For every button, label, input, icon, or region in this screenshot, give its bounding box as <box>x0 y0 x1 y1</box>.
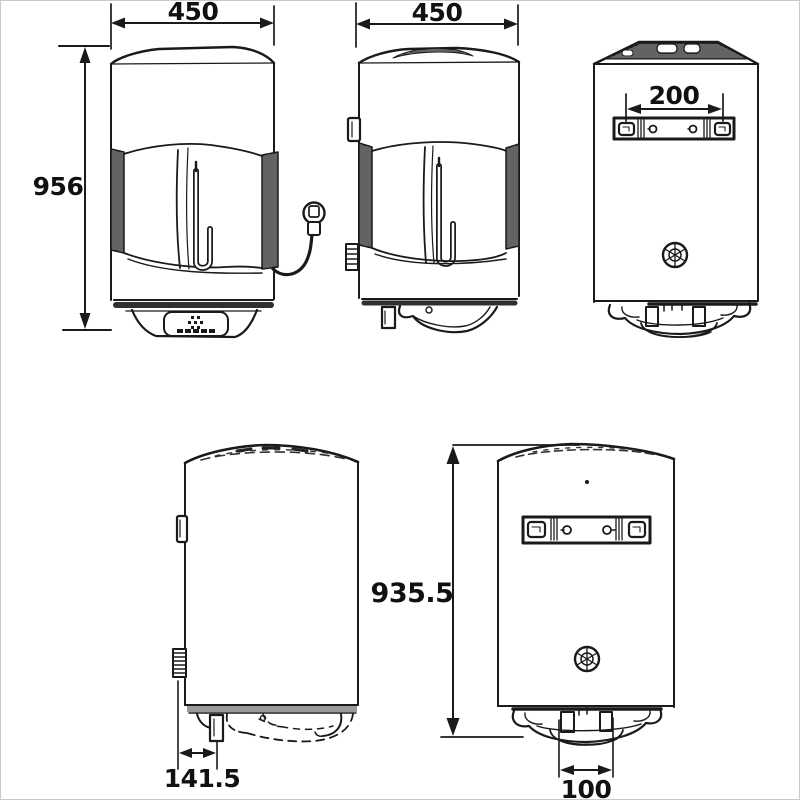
outlet-pipe <box>382 307 395 328</box>
insulation-hatch-right <box>262 152 278 269</box>
indicator-dots <box>188 316 203 329</box>
back-view-plain <box>498 444 674 745</box>
dim-label-front-width: 450 <box>168 1 219 26</box>
switch-row <box>177 329 215 333</box>
mount-tab <box>177 516 187 542</box>
dim-label-outlet-spacing: 100 <box>561 775 612 800</box>
technical-drawing-canvas: 450 450 956 200 935.5 141.5 <box>0 0 800 800</box>
anode-cap <box>575 647 599 671</box>
vent-dot <box>585 480 589 484</box>
dim-label-bracket-spacing: 200 <box>649 81 700 110</box>
dim-label-bottom-clearance: 141.5 <box>164 764 241 793</box>
dimension-bottom-clearance: 141.5 <box>164 681 241 793</box>
dimension-front-width: 450 <box>111 1 274 49</box>
wall-bracket <box>523 517 650 543</box>
mount-tab <box>348 118 360 141</box>
anode-cap <box>663 243 687 267</box>
power-cable <box>273 235 312 275</box>
valve-knob <box>173 649 186 677</box>
bottom-cap <box>399 306 497 332</box>
insulation-hatch-right <box>506 144 519 249</box>
dimension-body-height: 935.5 <box>371 445 579 737</box>
dome-top <box>111 47 274 64</box>
dim-label-overall-height: 956 <box>33 172 84 201</box>
bottom-cap <box>609 303 750 337</box>
dimension-side-width: 450 <box>356 1 518 47</box>
drain-pipe <box>210 715 223 741</box>
valve-knob <box>346 244 358 270</box>
insulation-hatch-left <box>359 143 372 248</box>
bottom-cap-dashed <box>197 714 353 741</box>
heating-element <box>196 171 210 268</box>
dimension-bracket-spacing: 200 <box>626 81 723 121</box>
bottom-cap <box>513 707 661 745</box>
side-view <box>346 48 519 332</box>
insulation-hatch-left <box>111 149 124 253</box>
wall-bracket <box>614 118 734 139</box>
dimension-overall-height: 956 <box>33 46 111 330</box>
heating-element <box>439 166 453 264</box>
dim-label-body-height: 935.5 <box>371 578 454 609</box>
water-heater-diagram: 450 450 956 200 935.5 141.5 <box>1 1 800 800</box>
side-view-plain <box>173 445 358 741</box>
front-view <box>111 47 325 337</box>
dim-label-side-width: 450 <box>412 1 463 27</box>
